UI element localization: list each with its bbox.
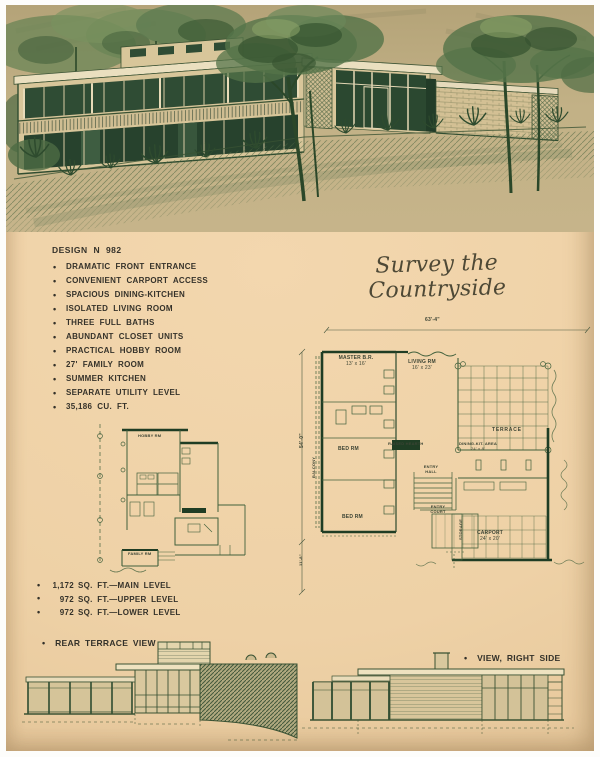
area-value: 1,172 bbox=[50, 579, 74, 593]
area-value: 972 bbox=[50, 606, 74, 620]
label-raised-hearth: RAISED HEARTH bbox=[388, 442, 424, 447]
feature-item: ABUNDANT CLOSET UNITS bbox=[52, 330, 292, 344]
label-entry-hall: ENTRY HALL bbox=[419, 465, 443, 475]
label-storage: STORAGE bbox=[459, 519, 464, 540]
feature-item: CONVENIENT CARPORT ACCESS bbox=[52, 274, 292, 288]
feature-item: THREE FULL BATHS bbox=[52, 316, 292, 330]
room-size: 24' x 20' bbox=[480, 536, 500, 542]
label-living-room: LIVING RM 16' x 23' bbox=[402, 359, 442, 371]
label-carport: CARPORT 24' x 20' bbox=[468, 530, 512, 542]
design-feature-list: DESIGN N 982 DRAMATIC FRONT ENTRANCE CON… bbox=[52, 245, 292, 414]
area-row: 972SQ. FT.—LOWER LEVEL bbox=[36, 606, 181, 620]
label-hobby-room: HOBBY RM bbox=[138, 434, 161, 439]
script-headline: Survey the Countryside bbox=[331, 249, 542, 304]
house-rendering-illustration bbox=[6, 5, 594, 232]
area-row: 972SQ. FT.—UPPER LEVEL bbox=[36, 593, 181, 607]
label-balcony: BALCONY bbox=[312, 457, 317, 478]
area-row: 1,172SQ. FT.—MAIN LEVEL bbox=[36, 579, 181, 593]
room-size: 24' x 8' bbox=[471, 446, 485, 451]
room-size: 13' x 16' bbox=[346, 361, 366, 367]
feature-item: 27' FAMILY ROOM bbox=[52, 358, 292, 372]
rear-terrace-elevation bbox=[18, 636, 308, 750]
area-value: 972 bbox=[50, 593, 74, 607]
dim-width-label: 63'-4" bbox=[425, 317, 440, 323]
feature-item: PRACTICAL HOBBY ROOM bbox=[52, 344, 292, 358]
dim-lower-label: 11'-8" bbox=[299, 554, 304, 566]
lower-level-floor-plan bbox=[70, 412, 260, 577]
feature-item: ISOLATED LIVING ROOM bbox=[52, 302, 292, 316]
label-master-bedroom: MASTER B.R. 13' x 16' bbox=[334, 355, 378, 367]
main-level-floor-plan bbox=[296, 310, 596, 602]
feature-item: SUMMER KITCHEN bbox=[52, 372, 292, 386]
feature-item: DRAMATIC FRONT ENTRANCE bbox=[52, 260, 292, 274]
label-family-room: FAMILY RM bbox=[128, 552, 151, 557]
room-size: 16' x 23' bbox=[412, 365, 432, 371]
label-bedroom-2: BED RM bbox=[342, 514, 363, 520]
right-side-view-label: VIEW, RIGHT SIDE bbox=[464, 653, 560, 663]
label-bedroom-1: BED RM bbox=[338, 446, 359, 452]
design-number-heading: DESIGN N 982 bbox=[52, 245, 292, 255]
dim-height-label: 54'-0" bbox=[299, 433, 305, 448]
square-footage-list: 1,172SQ. FT.—MAIN LEVEL 972SQ. FT.—UPPER… bbox=[36, 579, 181, 620]
feature-item: SEPARATE UTILITY LEVEL bbox=[52, 386, 292, 400]
area-label: SQ. FT.—UPPER LEVEL bbox=[78, 595, 178, 604]
catalog-page: DESIGN N 982 DRAMATIC FRONT ENTRANCE CON… bbox=[0, 0, 600, 757]
area-label: SQ. FT.—MAIN LEVEL bbox=[78, 581, 171, 590]
label-dining-kitchen: DINING-KIT. AREA 24' x 8' bbox=[450, 442, 506, 452]
rear-terrace-view-label: REAR TERRACE VIEW bbox=[42, 638, 156, 648]
feature-item: SPACIOUS DINING-KITCHEN bbox=[52, 288, 292, 302]
area-label: SQ. FT.—LOWER LEVEL bbox=[78, 608, 181, 617]
label-terrace: TERRACE bbox=[492, 427, 522, 433]
label-entry-court: ENTRY COURT bbox=[425, 505, 451, 515]
